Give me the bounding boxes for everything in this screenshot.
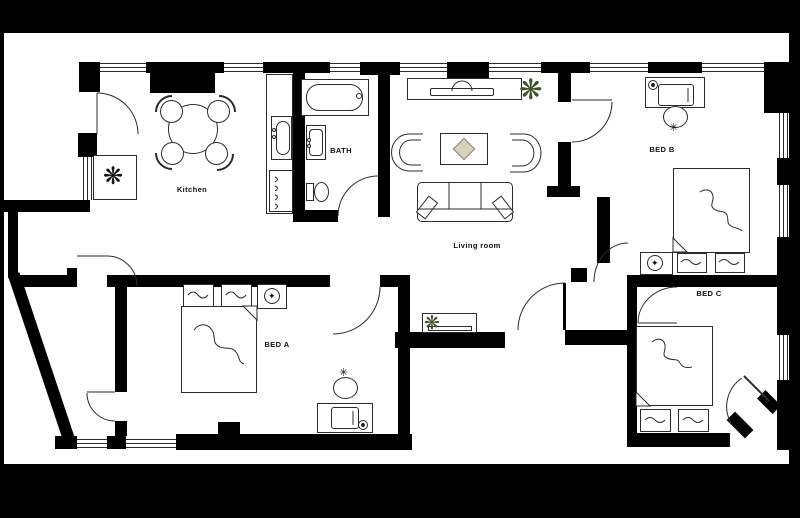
pillow <box>677 253 707 273</box>
wall-segment <box>293 210 338 222</box>
door-arc <box>87 393 115 421</box>
window <box>83 157 92 200</box>
wall-segment <box>627 433 730 447</box>
wall-segment <box>398 287 410 435</box>
armchair <box>392 134 423 171</box>
fan-icon: ✦ <box>651 259 659 268</box>
wall-segment <box>16 275 67 287</box>
window <box>126 439 176 448</box>
window <box>779 335 788 380</box>
desk-lamp <box>358 420 368 430</box>
bed <box>636 326 713 406</box>
wall-segment <box>79 62 100 92</box>
chair <box>205 142 228 165</box>
laptop <box>331 407 359 429</box>
room-label-kitchen: Kitchen <box>177 185 207 194</box>
door-arc <box>333 287 380 334</box>
window <box>330 63 360 72</box>
wall-segment <box>558 142 571 186</box>
wall-segment <box>115 287 127 392</box>
window <box>779 113 788 158</box>
door-arc <box>338 176 378 216</box>
door-arc <box>572 102 612 142</box>
faucet-dot <box>272 135 276 139</box>
wall-segment <box>777 237 789 335</box>
wall-segment <box>565 330 630 345</box>
wall-segment <box>648 62 702 73</box>
wall-segment <box>395 332 505 348</box>
wall-segment <box>764 62 789 113</box>
window <box>100 63 146 72</box>
window <box>590 63 648 72</box>
chair <box>161 142 184 165</box>
toilet-bowl <box>314 182 329 202</box>
window <box>400 63 447 72</box>
toilet-tank <box>306 183 314 201</box>
wall-segment <box>4 200 90 212</box>
window <box>224 63 263 72</box>
wall-segment <box>146 62 224 73</box>
bed <box>673 168 750 253</box>
chair <box>160 100 183 123</box>
window <box>702 63 764 72</box>
wall-segment <box>627 275 777 287</box>
door-arc-entrance <box>518 283 565 330</box>
sink-basin <box>276 121 290 155</box>
plant-icon: ❋ <box>424 314 440 333</box>
tv <box>430 88 494 96</box>
wall-segment <box>380 275 410 287</box>
desk-chair <box>333 377 358 399</box>
room-label-bath: BATH <box>330 146 352 155</box>
room-label-living-room: Living room <box>453 241 500 250</box>
chair-fan-icon: ✳ <box>339 368 348 379</box>
wall-segment <box>78 133 97 157</box>
wall-segment <box>558 72 571 102</box>
door-arc <box>638 287 677 323</box>
window <box>779 185 788 237</box>
window <box>77 439 107 448</box>
wall-segment <box>378 70 390 217</box>
pillow <box>183 284 214 307</box>
door-leaf-entrance <box>563 283 566 330</box>
bathtub-inner <box>306 84 363 111</box>
bath-sink-basin <box>309 129 323 156</box>
bed <box>181 306 257 393</box>
pillow <box>678 409 709 432</box>
plant-icon: ❋ <box>519 76 542 104</box>
pillow <box>221 284 252 307</box>
wall-segment <box>777 158 789 185</box>
laptop <box>658 84 694 106</box>
wall-segment <box>547 186 580 197</box>
wall-diagonal <box>8 272 75 443</box>
stove <box>269 170 293 212</box>
faucet-dot <box>307 138 311 142</box>
door-jamb <box>727 412 754 439</box>
room-label-bed-c: BED C <box>696 289 721 298</box>
chair-fan-icon: ✳ <box>669 123 678 134</box>
wall-segment <box>777 380 789 450</box>
wall-segment <box>597 197 610 263</box>
floor-plan: ❋ ❋ ❋ ✦ ✳ ✳ ✦ <box>0 0 800 518</box>
snowflake-icon: ❋ <box>103 165 123 189</box>
armchair-cushion <box>512 140 534 166</box>
faucet-dot <box>307 144 311 148</box>
faucet-dot <box>272 128 276 132</box>
wall-segment <box>176 434 412 450</box>
room-label-bed-b: BED B <box>649 145 674 154</box>
wall-segment <box>107 436 126 449</box>
wall-segment <box>218 422 240 434</box>
armchair-cushion <box>400 140 421 165</box>
door-arc <box>97 93 138 134</box>
page-margin-top <box>0 0 800 33</box>
wall-segment <box>8 212 18 278</box>
wall-segment <box>115 421 127 436</box>
drain-dot <box>356 93 362 99</box>
wall-segment <box>67 268 77 287</box>
desk-lamp <box>648 80 658 90</box>
armchair <box>510 134 541 172</box>
fan-icon: ✦ <box>268 292 276 301</box>
room-label-bed-a: BED A <box>264 340 289 349</box>
page-margin-bottom <box>0 464 800 518</box>
wall-segment <box>150 73 215 93</box>
pillow <box>640 409 671 432</box>
pillow <box>715 253 745 273</box>
page-margin-left <box>0 0 4 518</box>
wall-segment <box>571 268 587 282</box>
wall-segment <box>55 436 77 449</box>
chair <box>207 100 230 123</box>
wall-segment <box>107 275 330 287</box>
window <box>489 63 541 72</box>
page-margin-right <box>789 0 800 518</box>
